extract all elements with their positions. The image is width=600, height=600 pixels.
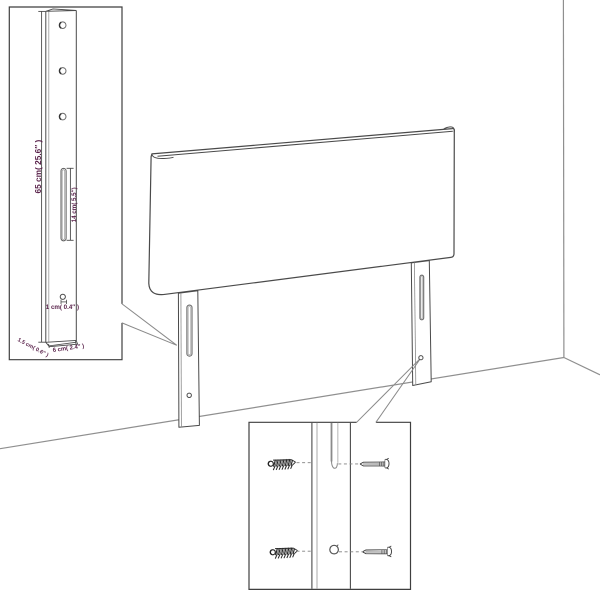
svg-text:14 cm( 5.5″): 14 cm( 5.5″)	[71, 187, 78, 222]
svg-text:1 cm( 0.4″ ): 1 cm( 0.4″ )	[46, 304, 79, 311]
svg-text:65 cm( 25.6″ ): 65 cm( 25.6″ )	[33, 139, 43, 193]
